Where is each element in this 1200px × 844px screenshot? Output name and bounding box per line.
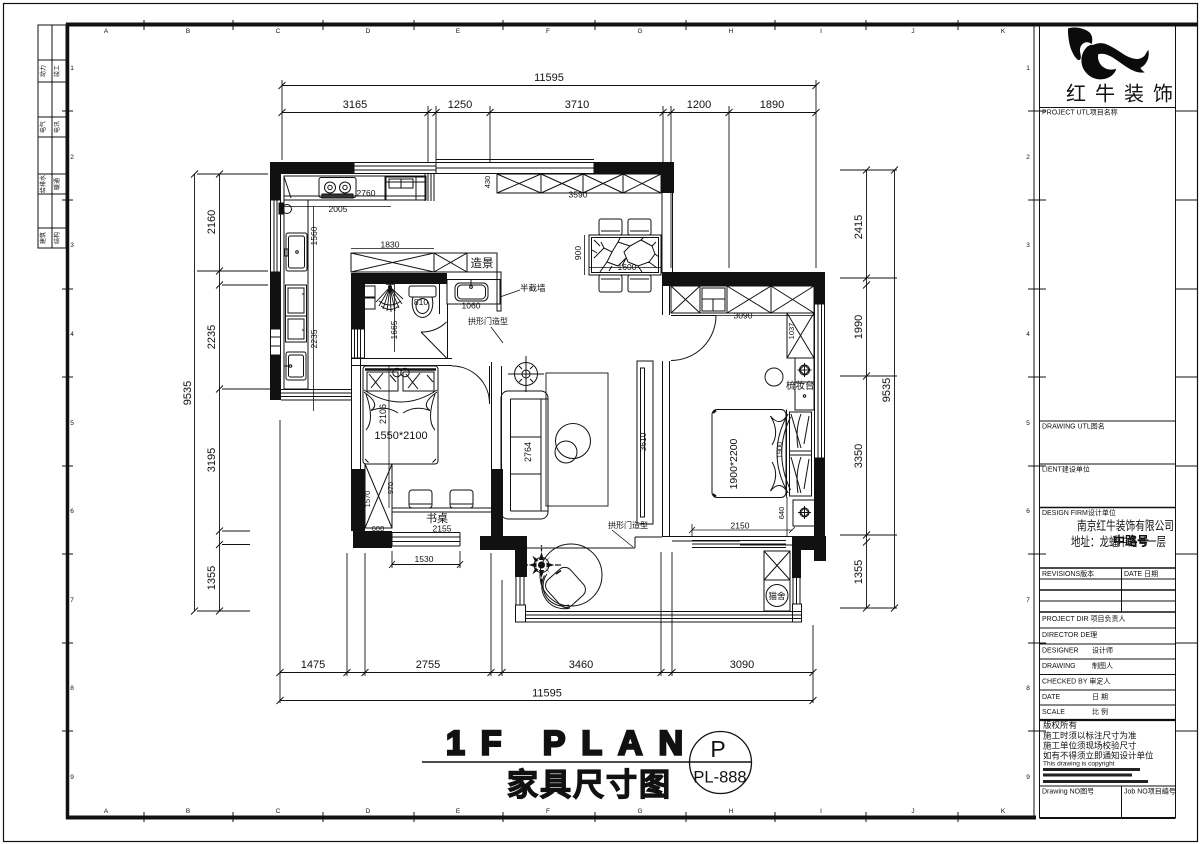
svg-text:1037: 1037 xyxy=(787,323,796,340)
svg-text:结构: 结构 xyxy=(53,232,61,244)
svg-text:LIENT建设单位: LIENT建设单位 xyxy=(1042,465,1090,474)
svg-text:9535: 9535 xyxy=(182,381,194,405)
svg-text:G: G xyxy=(637,28,642,35)
svg-text:给排水: 给排水 xyxy=(39,175,47,193)
svg-text:H: H xyxy=(729,808,734,815)
svg-text:DRAWING: DRAWING xyxy=(1042,663,1076,670)
svg-text:B: B xyxy=(186,808,190,815)
svg-text:A: A xyxy=(104,28,109,35)
svg-text:3: 3 xyxy=(1026,242,1030,249)
svg-text:2415: 2415 xyxy=(853,215,865,239)
svg-text:建筑: 建筑 xyxy=(39,232,47,244)
svg-text:电讯: 电讯 xyxy=(53,121,61,133)
svg-text:7: 7 xyxy=(70,597,74,604)
svg-text:F: F xyxy=(546,808,550,815)
svg-text:3610: 3610 xyxy=(638,432,648,451)
svg-text:9535: 9535 xyxy=(881,378,893,402)
svg-text:DATE 日期: DATE 日期 xyxy=(1124,570,1158,578)
svg-text:拱形门造型: 拱形门造型 xyxy=(468,316,508,326)
svg-text:A: A xyxy=(104,808,109,815)
svg-text:D: D xyxy=(366,808,371,815)
svg-text:2755: 2755 xyxy=(416,659,440,671)
svg-text:I: I xyxy=(820,28,822,35)
svg-text:4: 4 xyxy=(70,331,74,338)
svg-text:制图人: 制图人 xyxy=(1092,661,1113,670)
svg-text:3710: 3710 xyxy=(565,99,589,111)
svg-text:中路号: 中路号 xyxy=(1113,533,1149,548)
svg-text:11595: 11595 xyxy=(532,688,562,700)
svg-text:970: 970 xyxy=(386,482,395,495)
svg-text:C: C xyxy=(276,28,281,35)
svg-text:6: 6 xyxy=(70,508,74,515)
svg-text:施工时须以标注尺寸为准: 施工时须以标注尺寸为准 xyxy=(1043,731,1137,741)
svg-text:拱形门造型: 拱形门造型 xyxy=(608,520,648,530)
svg-text:J: J xyxy=(911,28,914,35)
svg-text:5: 5 xyxy=(70,420,74,427)
svg-text:1250: 1250 xyxy=(448,99,472,111)
svg-text:1900*2200: 1900*2200 xyxy=(728,438,740,489)
svg-text:2: 2 xyxy=(70,154,74,161)
svg-text:1900: 1900 xyxy=(775,442,784,459)
svg-text:3: 3 xyxy=(70,242,74,249)
svg-text:造景: 造景 xyxy=(471,256,494,270)
svg-text:1060: 1060 xyxy=(462,301,481,311)
svg-text:2155: 2155 xyxy=(433,524,452,534)
svg-text:PROJECT DIR 项目负责人: PROJECT DIR 项目负责人 xyxy=(1042,614,1126,623)
svg-text:4: 4 xyxy=(1026,331,1030,338)
svg-text:1475: 1475 xyxy=(301,659,325,671)
svg-text:B: B xyxy=(186,28,190,35)
svg-text:3460: 3460 xyxy=(569,659,593,671)
svg-text:CHECKED BY 审定人: CHECKED BY 审定人 xyxy=(1042,677,1110,686)
svg-text:Job NO项目编号: Job NO项目编号 xyxy=(1124,787,1176,796)
svg-text:2235: 2235 xyxy=(206,325,218,349)
svg-text:DIRECTOR DE理: DIRECTOR DE理 xyxy=(1042,631,1097,639)
svg-text:梳妆台: 梳妆台 xyxy=(786,380,815,392)
svg-text:8: 8 xyxy=(70,685,74,692)
svg-text:动力: 动力 xyxy=(39,65,47,77)
svg-text:H: H xyxy=(729,28,734,35)
svg-text:1560: 1560 xyxy=(309,226,319,245)
svg-text:1200: 1200 xyxy=(687,99,711,111)
svg-text:J: J xyxy=(911,808,914,815)
svg-text:2005: 2005 xyxy=(329,204,348,214)
svg-text:1: 1 xyxy=(1026,65,1030,72)
svg-text:7: 7 xyxy=(1026,597,1030,604)
svg-text:2764: 2764 xyxy=(523,442,533,462)
svg-text:5: 5 xyxy=(1026,420,1030,427)
svg-text:设计师: 设计师 xyxy=(1092,646,1113,655)
svg-text:900: 900 xyxy=(573,246,583,260)
svg-text:K: K xyxy=(1001,808,1006,815)
svg-text:E: E xyxy=(456,808,461,815)
svg-text:3350: 3350 xyxy=(853,444,865,468)
svg-text:电气: 电气 xyxy=(39,121,47,133)
svg-text:11595: 11595 xyxy=(534,72,564,84)
svg-text:C: C xyxy=(276,808,281,815)
svg-text:DESIGNER: DESIGNER xyxy=(1042,648,1079,655)
svg-text:半截墙: 半截墙 xyxy=(520,283,546,293)
svg-text:比 例: 比 例 xyxy=(1092,707,1108,716)
svg-text:640: 640 xyxy=(777,507,786,520)
svg-text:9: 9 xyxy=(1026,774,1030,781)
svg-text:1355: 1355 xyxy=(853,560,865,584)
svg-text:I: I xyxy=(820,808,822,815)
svg-text:SCALE: SCALE xyxy=(1042,709,1065,716)
svg-text:1570: 1570 xyxy=(363,491,372,508)
svg-text:DESIGN FIRM设计单位: DESIGN FIRM设计单位 xyxy=(1042,508,1116,517)
svg-text:版权所有: 版权所有 xyxy=(1043,720,1077,730)
svg-text:竣工: 竣工 xyxy=(53,65,61,77)
svg-text:南京红牛装饰有限公司: 南京红牛装饰有限公司 xyxy=(1077,518,1174,533)
svg-text:家具尺寸图: 家具尺寸图 xyxy=(507,768,670,803)
svg-text:DRAWING UTL图名: DRAWING UTL图名 xyxy=(1042,422,1105,431)
svg-text:2106: 2106 xyxy=(378,404,388,424)
svg-text:DATE: DATE xyxy=(1042,694,1060,701)
svg-text:1530: 1530 xyxy=(415,554,434,564)
svg-text:如有不得须立即通知设计单位: 如有不得须立即通知设计单位 xyxy=(1043,751,1154,761)
svg-text:3590: 3590 xyxy=(569,190,588,200)
svg-text:F: F xyxy=(546,28,550,35)
svg-text:PROJECT UTL项目名称: PROJECT UTL项目名称 xyxy=(1042,108,1118,117)
svg-text:猫舍: 猫舍 xyxy=(768,591,786,601)
svg-text:1890: 1890 xyxy=(760,99,784,111)
svg-text:2760: 2760 xyxy=(357,188,376,198)
svg-text:This drawing is copyright: This drawing is copyright xyxy=(1043,761,1115,768)
svg-text:P: P xyxy=(710,736,725,762)
svg-text:1990: 1990 xyxy=(853,315,865,339)
svg-text:施工单位须现场校验尺寸: 施工单位须现场校验尺寸 xyxy=(1043,741,1137,751)
svg-text:3090: 3090 xyxy=(730,659,754,671)
svg-text:8: 8 xyxy=(1026,685,1030,692)
svg-text:E: E xyxy=(456,28,461,35)
svg-text:日 期: 日 期 xyxy=(1092,693,1108,701)
svg-text:2150: 2150 xyxy=(731,521,750,531)
svg-text:3165: 3165 xyxy=(343,99,367,111)
svg-text:810: 810 xyxy=(414,297,428,307)
svg-text:2: 2 xyxy=(1026,154,1030,161)
svg-text:G: G xyxy=(637,808,642,815)
svg-text:1830: 1830 xyxy=(381,240,400,250)
svg-text:1550*2100: 1550*2100 xyxy=(374,430,427,442)
svg-text:暖通: 暖通 xyxy=(53,178,61,190)
svg-text:2160: 2160 xyxy=(206,210,218,234)
svg-text:1355: 1355 xyxy=(206,566,218,590)
svg-text:430: 430 xyxy=(483,176,492,189)
svg-text:1600: 1600 xyxy=(618,262,637,272)
svg-text:3195: 3195 xyxy=(206,448,218,472)
svg-text:9: 9 xyxy=(70,774,74,781)
svg-text:1665: 1665 xyxy=(389,320,399,339)
svg-text:2235: 2235 xyxy=(309,329,319,348)
svg-text:600: 600 xyxy=(372,524,385,533)
svg-text:1: 1 xyxy=(70,65,74,72)
svg-text:PL-888: PL-888 xyxy=(693,769,746,787)
svg-text:D: D xyxy=(366,28,371,35)
svg-text:REVISIONS版本: REVISIONS版本 xyxy=(1042,569,1094,578)
svg-text:6: 6 xyxy=(1026,508,1030,515)
svg-text:K: K xyxy=(1001,28,1006,35)
svg-text:Drawing NO图号: Drawing NO图号 xyxy=(1042,788,1094,796)
